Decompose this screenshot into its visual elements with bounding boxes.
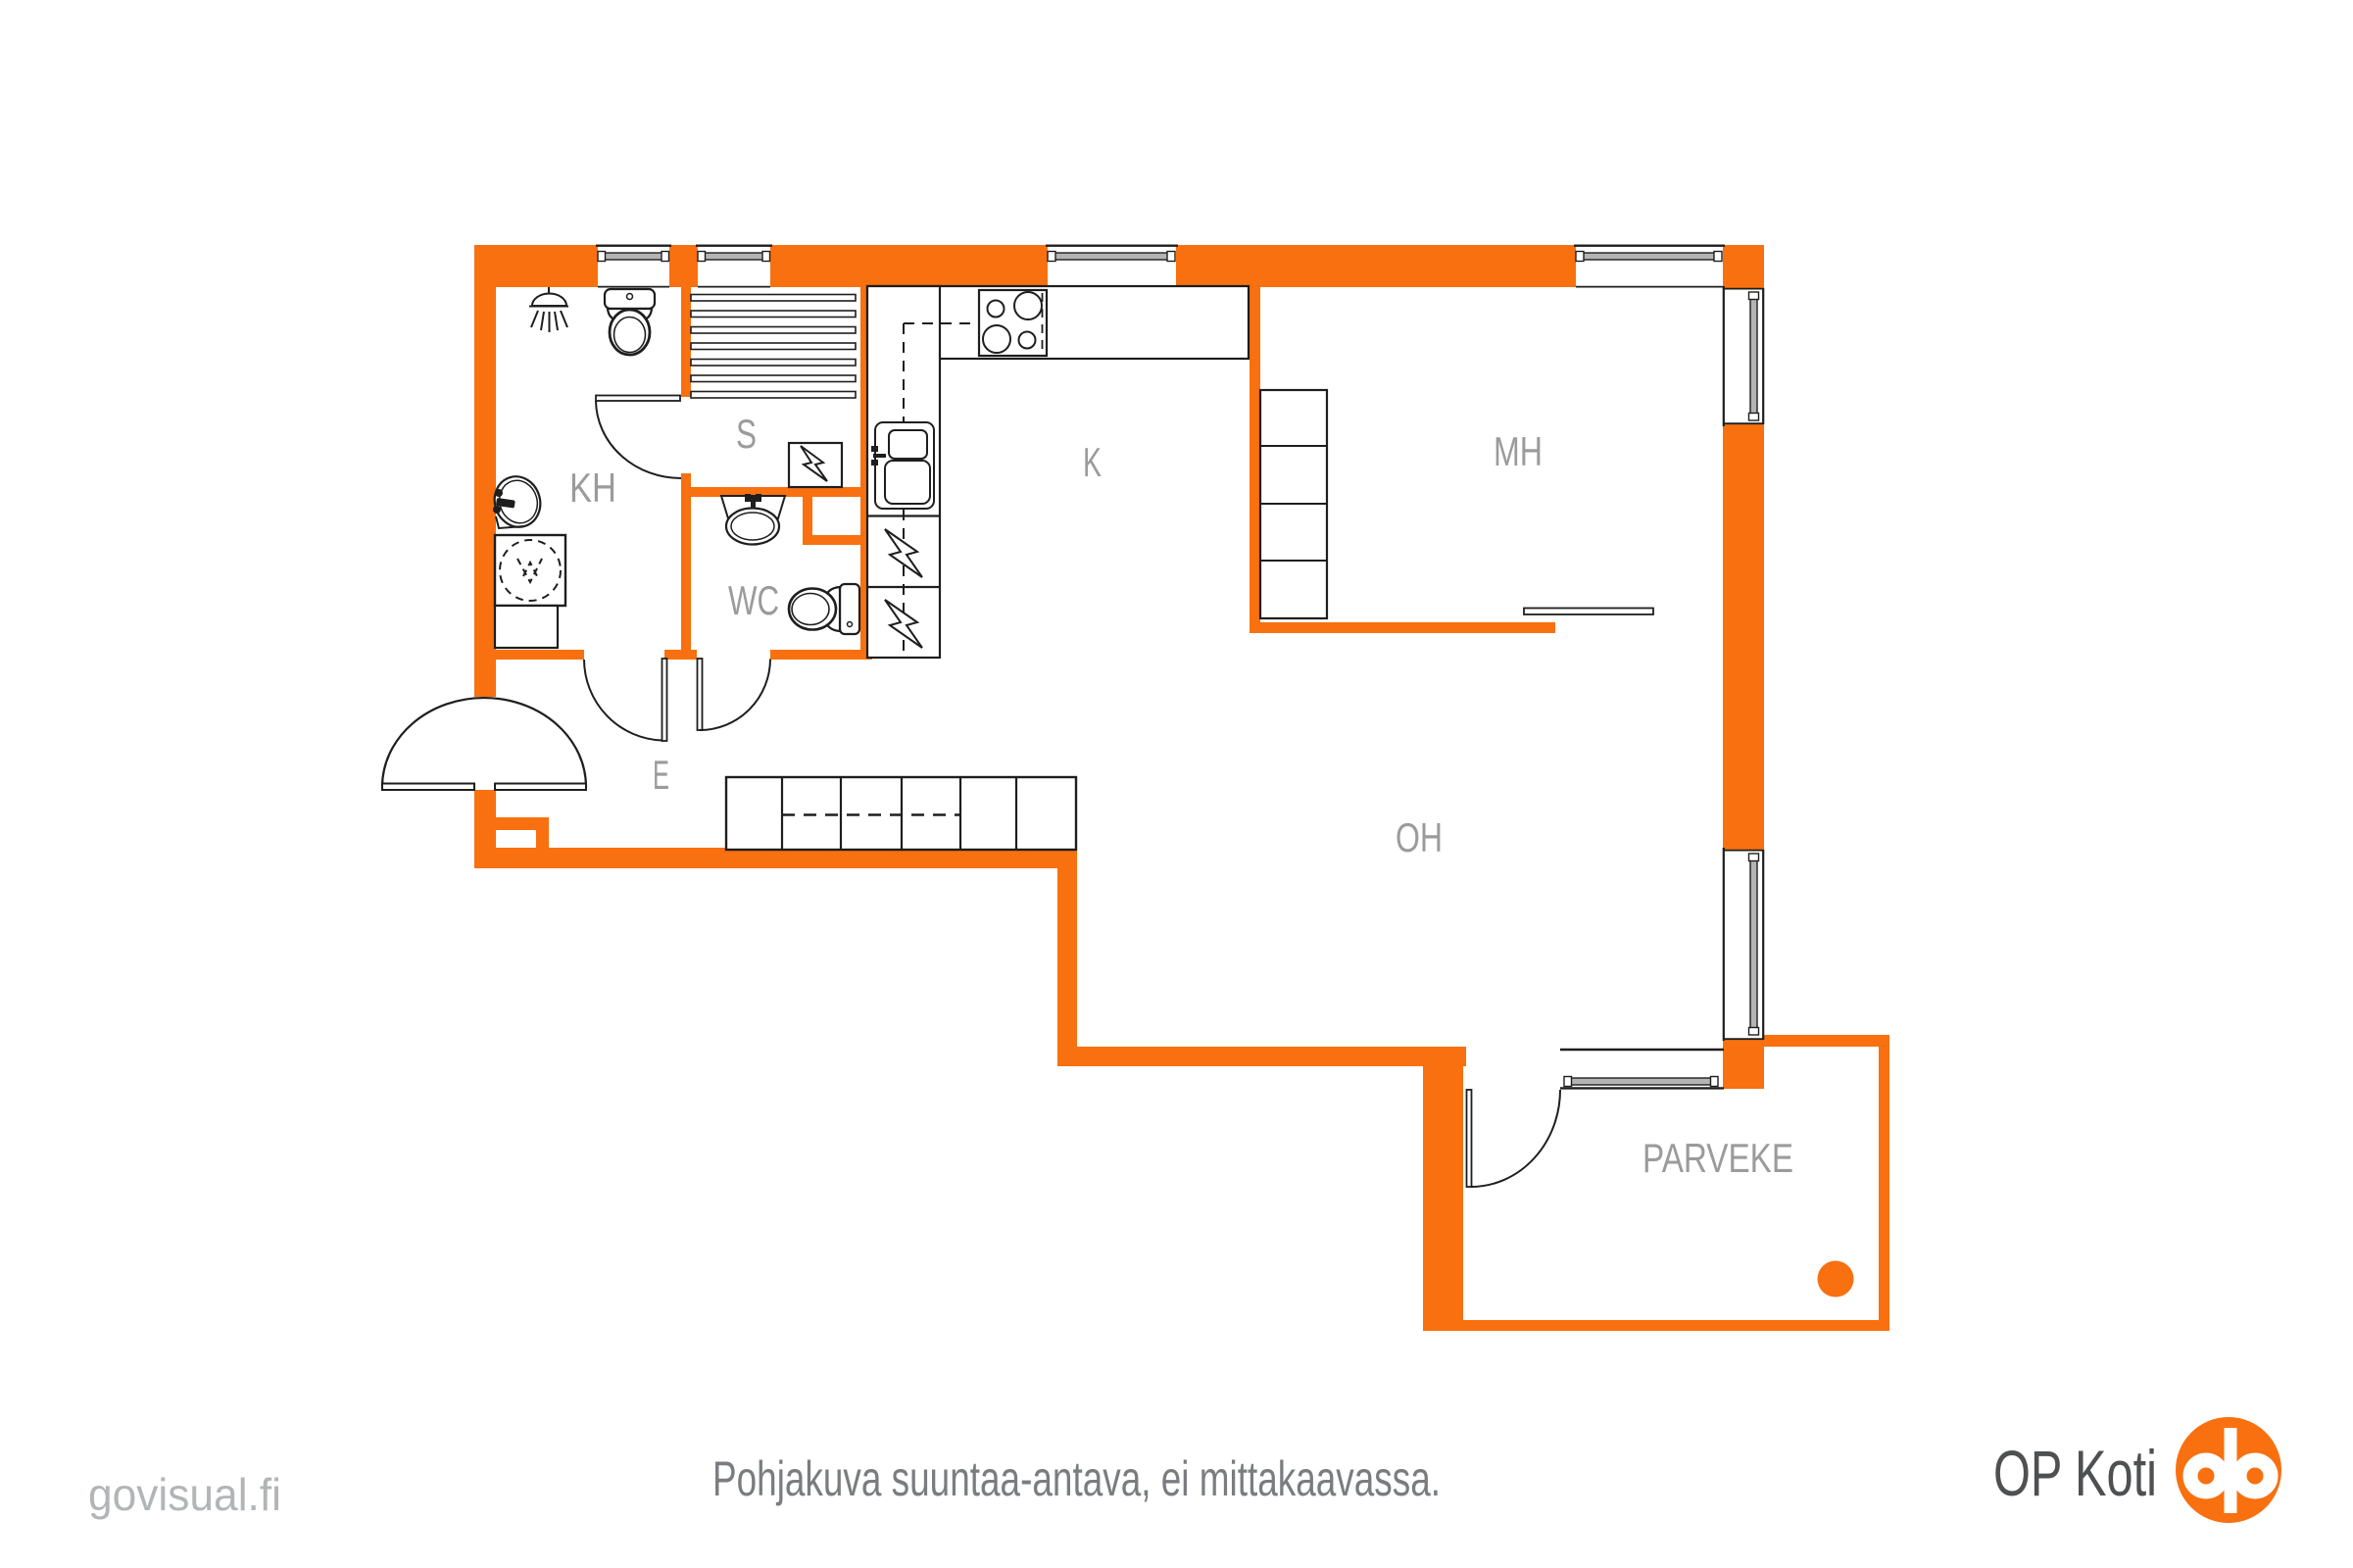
svg-text:S: S — [736, 411, 757, 457]
svg-text:Pohjakuva suuntaa-antava, ei m: Pohjakuva suuntaa-antava, ei mittakaavas… — [712, 1451, 1441, 1506]
svg-text:govisual.fi: govisual.fi — [88, 1469, 281, 1520]
svg-text:MH: MH — [1494, 428, 1543, 474]
svg-text:OH: OH — [1396, 814, 1443, 860]
svg-text:E: E — [653, 752, 669, 798]
svg-text:KH: KH — [569, 465, 616, 511]
svg-text:OP Koti: OP Koti — [1993, 1437, 2157, 1509]
svg-text:PARVEKE: PARVEKE — [1642, 1135, 1793, 1181]
svg-text:K: K — [1083, 439, 1102, 485]
svg-text:WC: WC — [728, 577, 779, 623]
